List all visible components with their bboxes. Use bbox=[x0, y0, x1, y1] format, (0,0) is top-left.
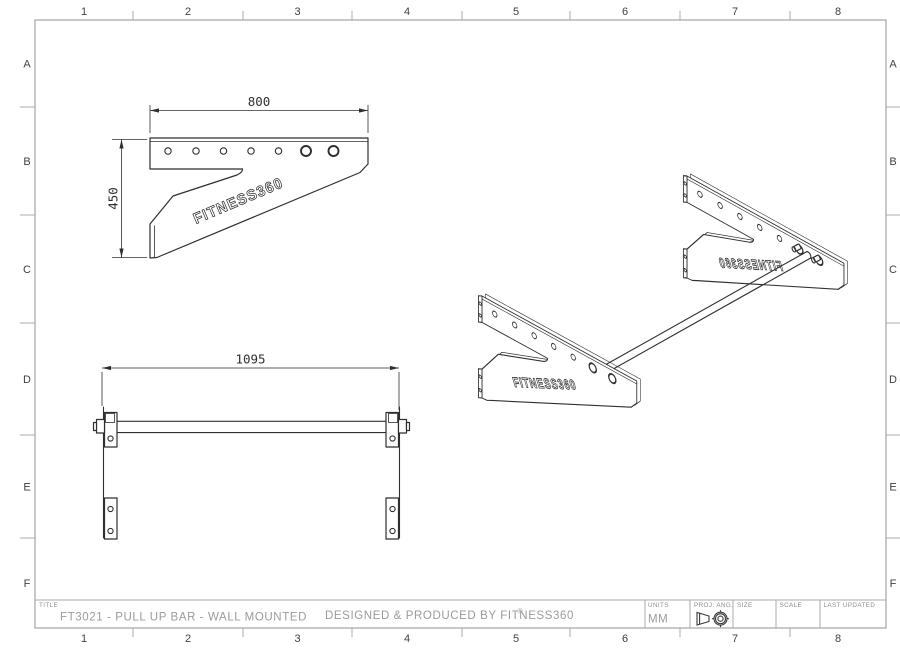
units-cell-label: UNITS bbox=[648, 602, 669, 609]
grid-col-label-top: 2 bbox=[185, 6, 191, 18]
dimension-800: 800 bbox=[150, 94, 368, 133]
scale-cell-label: SCALE bbox=[780, 602, 803, 609]
cad-sheet-svg: 1122334455667788AABBCCDDEEFF TITLE FT302… bbox=[0, 0, 900, 650]
grid-col-label-bottom: 7 bbox=[732, 633, 738, 645]
grid-row-label-right: A bbox=[889, 59, 897, 71]
grid-reference-labels: 1122334455667788AABBCCDDEEFF bbox=[20, 6, 900, 645]
grid-col-label-bottom: 1 bbox=[81, 633, 87, 645]
grid-row-label-left: F bbox=[24, 578, 31, 590]
grid-col-label-top: 5 bbox=[513, 6, 519, 18]
isometric-view: FITNESS360 FITNESS360 bbox=[478, 174, 847, 485]
units-value: MM bbox=[648, 614, 668, 626]
title-block: TITLE FT3021 - PULL UP BAR - WALL MOUNTE… bbox=[35, 600, 886, 628]
grid-col-label-bottom: 6 bbox=[622, 633, 628, 645]
dimension-450-text: 450 bbox=[106, 187, 121, 210]
dimension-1095-text: 1095 bbox=[235, 352, 265, 367]
grid-col-label-top: 8 bbox=[835, 6, 841, 18]
size-cell-label: SIZE bbox=[737, 602, 753, 609]
grid-col-label-top: 6 bbox=[622, 6, 628, 18]
grid-row-label-right: C bbox=[889, 264, 897, 276]
grid-col-label-bottom: 2 bbox=[185, 633, 191, 645]
grid-row-label-right: F bbox=[890, 578, 897, 590]
grid-col-label-bottom: 5 bbox=[513, 633, 519, 645]
grid-col-label-bottom: 4 bbox=[404, 633, 410, 645]
dimension-1095: 1095 bbox=[102, 352, 399, 411]
iso-near-bracket: FITNESS360 bbox=[478, 294, 636, 485]
title-cell-label: TITLE bbox=[39, 602, 58, 609]
front-view-bar bbox=[117, 421, 386, 432]
front-view-left-bracket bbox=[94, 407, 118, 539]
front-view-right-bracket bbox=[386, 407, 410, 539]
grid-col-label-top: 1 bbox=[81, 6, 87, 18]
grid-col-label-top: 7 bbox=[732, 6, 738, 18]
grid-row-label-left: D bbox=[23, 374, 31, 386]
grid-row-label-right: E bbox=[889, 482, 896, 494]
grid-row-label-left: A bbox=[23, 59, 31, 71]
last-updated-cell-label: LAST UPDATED bbox=[824, 602, 876, 609]
grid-col-label-bottom: 8 bbox=[835, 633, 841, 645]
grid-col-label-top: 4 bbox=[404, 6, 410, 18]
produced-by-text: DESIGNED & PRODUCED BY FITNESS360 bbox=[325, 610, 574, 622]
grid-col-label-top: 3 bbox=[294, 6, 300, 18]
right-bar-bolt bbox=[399, 420, 407, 434]
grid-row-label-left: B bbox=[23, 156, 30, 168]
dimension-800-text: 800 bbox=[248, 94, 271, 109]
grid-row-label-right: B bbox=[889, 156, 896, 168]
brand-engraving-near: FITNESS360 bbox=[511, 375, 578, 393]
grid-row-label-left: E bbox=[23, 482, 30, 494]
front-view: 1095 bbox=[94, 352, 410, 540]
grid-row-label-right: D bbox=[889, 374, 897, 386]
third-angle-projection-icon bbox=[697, 610, 729, 627]
drawing-title: FT3021 - PULL UP BAR - WALL MOUNTED bbox=[60, 612, 307, 624]
iso-far-bracket: FITNESS360 bbox=[683, 174, 844, 367]
dimension-450: 450 bbox=[106, 140, 148, 258]
grid-row-label-left: C bbox=[23, 264, 31, 276]
sheet-border: 1122334455667788AABBCCDDEEFF bbox=[20, 6, 900, 645]
side-view: FITNESS360 800 450 bbox=[106, 94, 369, 258]
drawing-sheet: 1122334455667788AABBCCDDEEFF TITLE FT302… bbox=[0, 0, 900, 650]
grid-col-label-bottom: 3 bbox=[294, 633, 300, 645]
registered-trademark-mark: ® bbox=[518, 608, 524, 616]
side-view-bracket-plate: FITNESS360 bbox=[150, 138, 368, 258]
projection-angle-cell-label: PROJ. ANG. bbox=[694, 602, 733, 609]
left-bar-bolt bbox=[97, 420, 105, 434]
